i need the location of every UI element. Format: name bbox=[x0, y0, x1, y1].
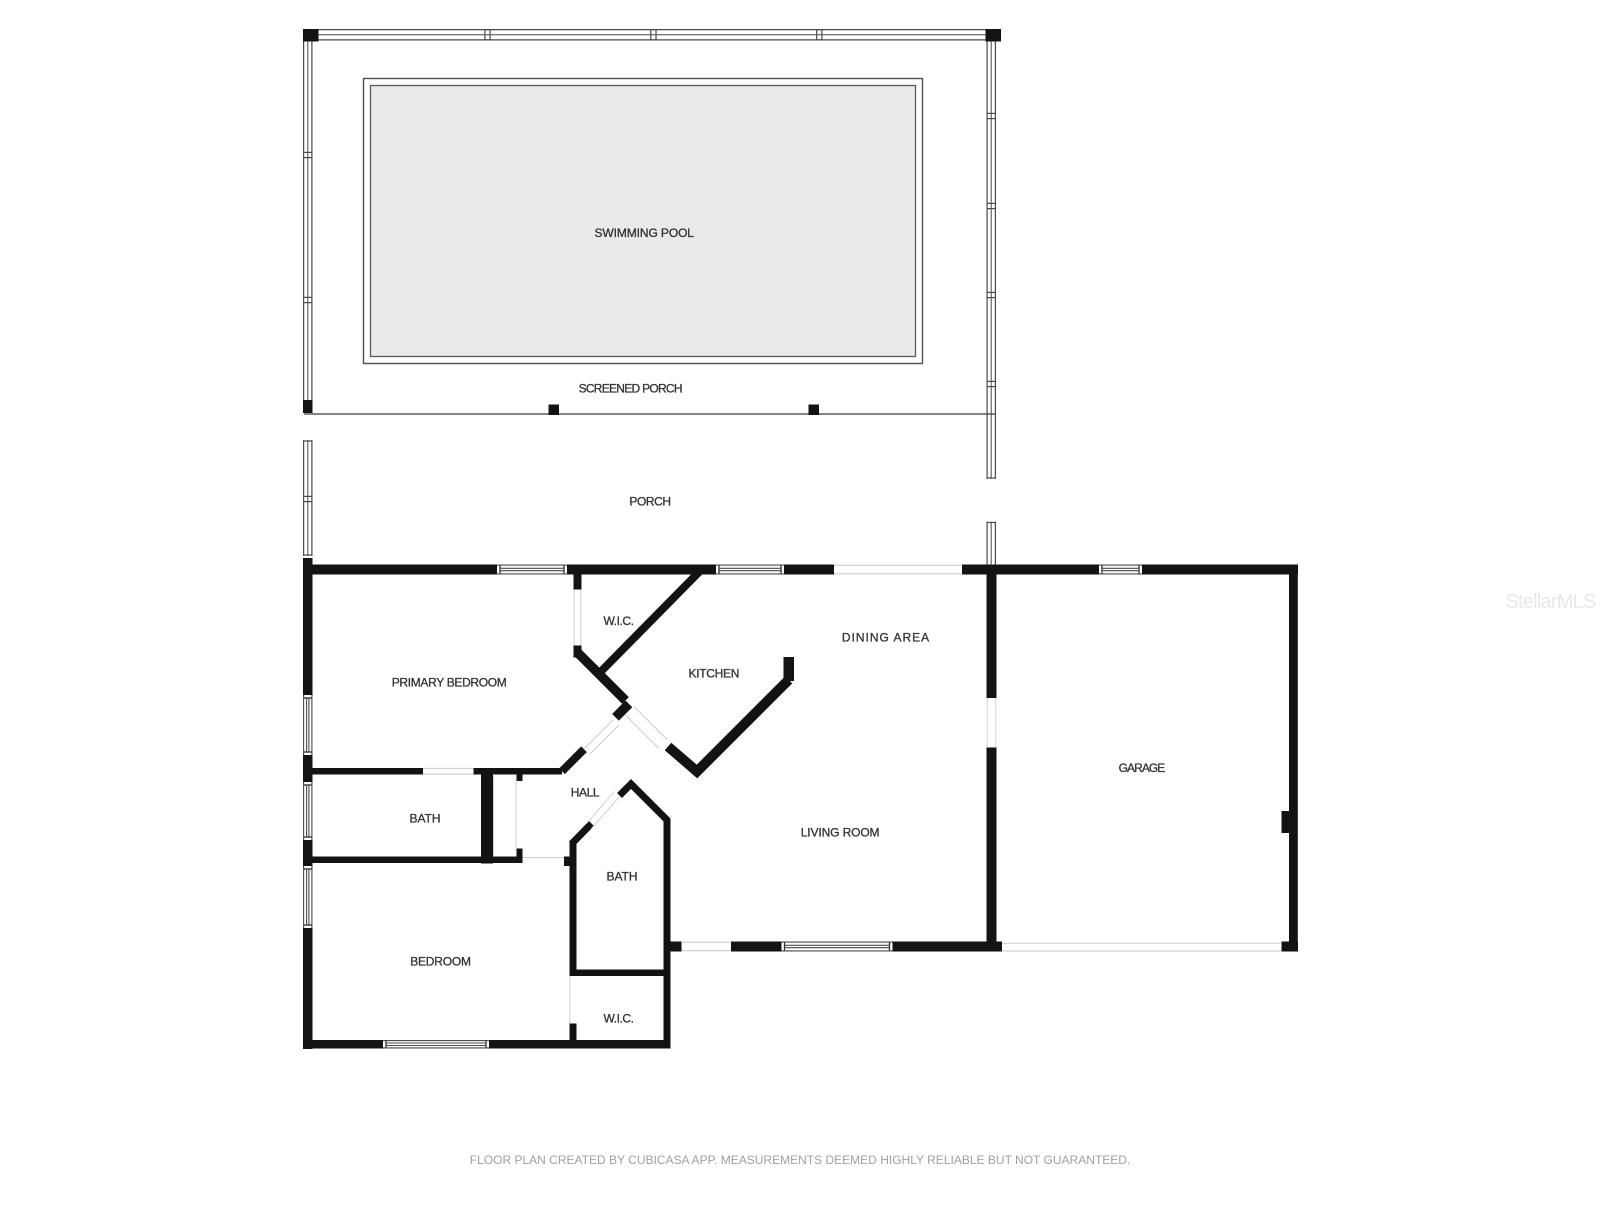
svg-text:BEDROOM: BEDROOM bbox=[410, 955, 471, 969]
svg-text:W.I.C.: W.I.C. bbox=[603, 1012, 633, 1026]
svg-text:PRIMARY BEDROOM: PRIMARY BEDROOM bbox=[392, 675, 507, 689]
svg-text:HALL: HALL bbox=[571, 785, 600, 799]
svg-text:FLOOR PLAN CREATED BY CUBICASA: FLOOR PLAN CREATED BY CUBICASA APP. MEAS… bbox=[470, 1153, 1131, 1167]
svg-text:W.I.C.: W.I.C. bbox=[603, 614, 633, 628]
svg-text:SCREENED PORCH: SCREENED PORCH bbox=[579, 382, 682, 396]
svg-text:SWIMMING POOL: SWIMMING POOL bbox=[594, 226, 694, 240]
svg-text:BATH: BATH bbox=[409, 812, 440, 826]
svg-text:DINING AREA: DINING AREA bbox=[842, 631, 930, 645]
svg-text:GARAGE: GARAGE bbox=[1119, 761, 1166, 775]
svg-text:StellarMLS: StellarMLS bbox=[1505, 591, 1596, 613]
svg-text:LIVING ROOM: LIVING ROOM bbox=[801, 826, 880, 840]
svg-text:PORCH: PORCH bbox=[629, 495, 670, 509]
svg-text:KITCHEN: KITCHEN bbox=[688, 667, 739, 681]
svg-text:BATH: BATH bbox=[606, 870, 637, 884]
